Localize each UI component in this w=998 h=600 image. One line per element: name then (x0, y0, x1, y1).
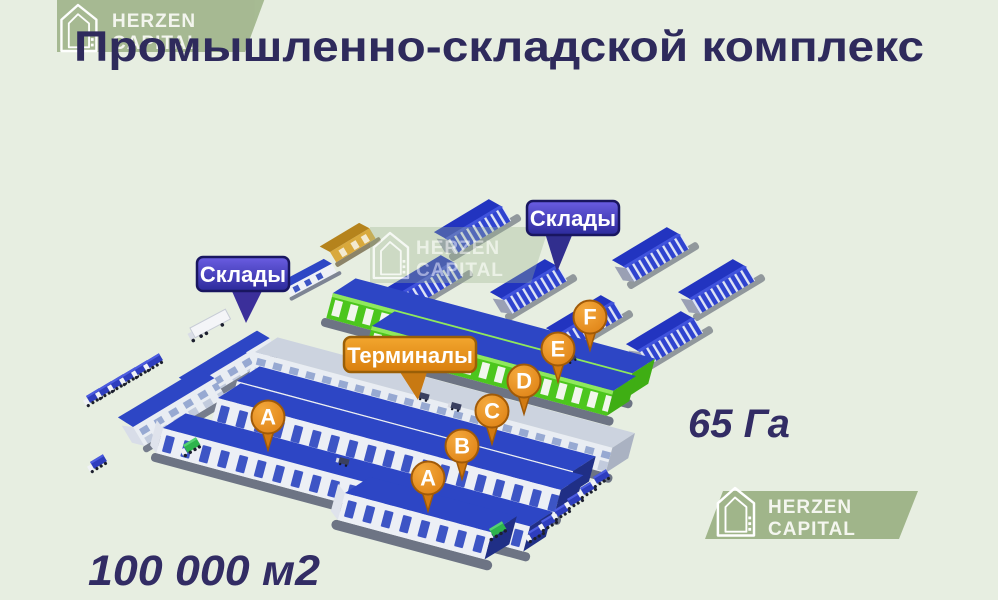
land-area-value: 65 Га (688, 402, 790, 446)
industrial-complex-diagram: HERZEN CAPITAL Промышленно-складской ком… (0, 0, 998, 600)
pin-letter: F (583, 305, 596, 330)
page-title: Промышленно-складской комплекс (74, 23, 924, 71)
warehouses-top-label: Склады (530, 206, 616, 231)
pin-letter: B (454, 434, 470, 459)
pin-letter: E (551, 337, 566, 362)
watermark-bottom-right: HERZEN CAPITAL (705, 488, 918, 540)
warehouses-left-label: Склады (200, 262, 286, 287)
watermark-line1: HERZEN (768, 497, 852, 518)
watermark-line2: CAPITAL (416, 260, 504, 281)
pin-letter: D (516, 369, 532, 394)
site-plan-canvas: HERZEN CAPITAL Промышленно-складской ком… (0, 0, 998, 600)
terminals-label: Терминалы (347, 343, 473, 368)
pin-letter: C (484, 399, 500, 424)
watermark-center: HERZEN CAPITAL (370, 227, 549, 283)
built-area-value: 100 000 м2 (88, 547, 320, 595)
pin-letter: A (260, 405, 276, 430)
pin-letter: A (420, 466, 436, 491)
watermark-line1: HERZEN (416, 238, 500, 259)
watermark-line2: CAPITAL (768, 519, 856, 540)
